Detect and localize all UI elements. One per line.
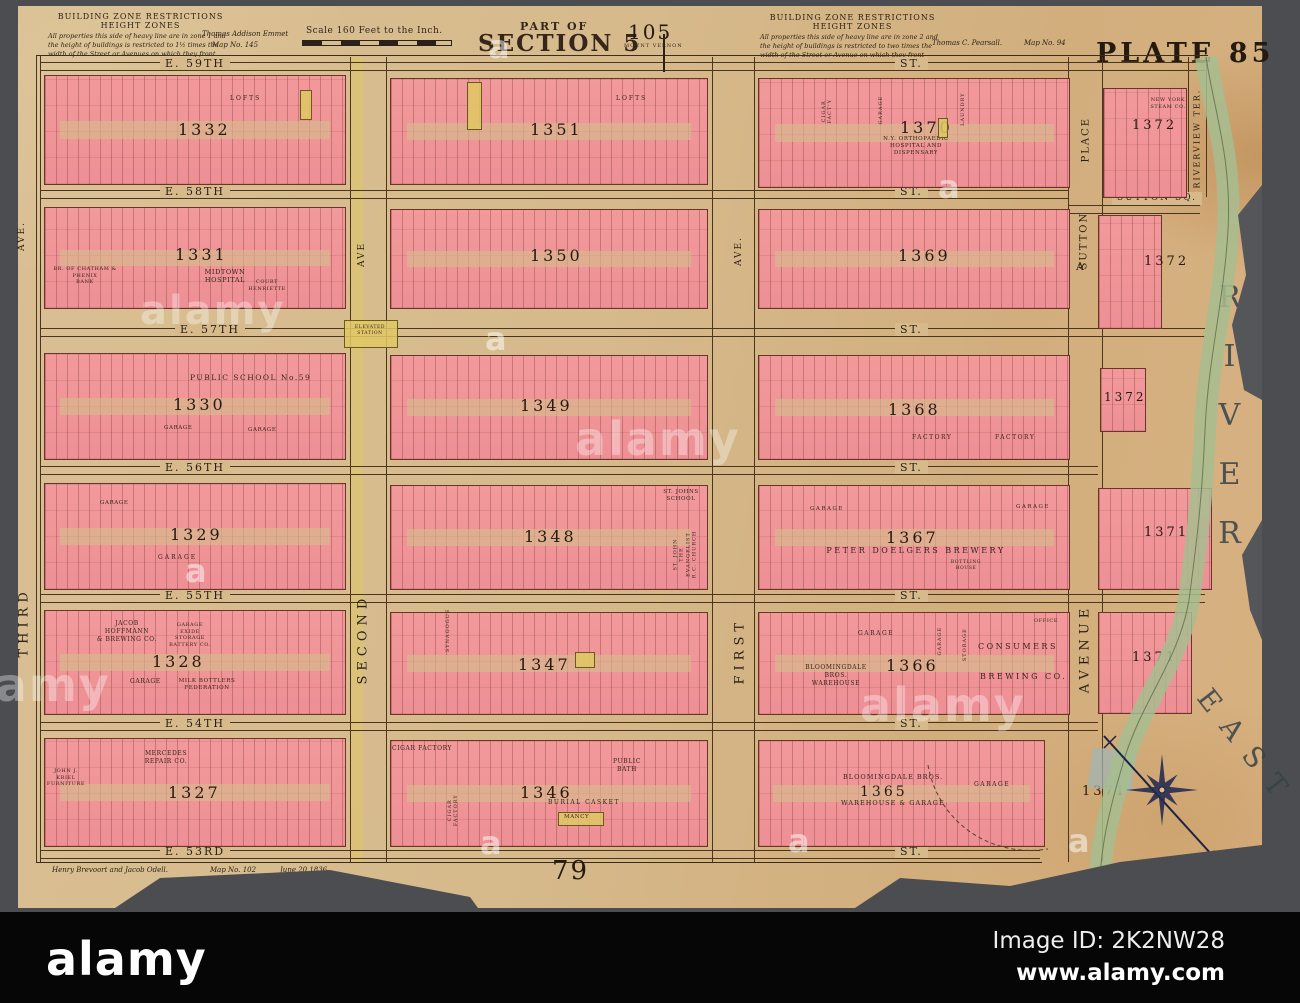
third-ave-sub: AVE. <box>17 219 27 251</box>
block-1346-public-bath: PUBLIC BATH <box>610 758 644 774</box>
block-1366-storage: STORAGE <box>962 629 968 661</box>
block-1328-garage: GARAGE <box>130 678 161 686</box>
block-1372-south <box>1098 215 1162 329</box>
sutton-name: SUTTON <box>1079 210 1090 270</box>
street-name-59: E. 59TH <box>160 57 230 70</box>
street-name-57: E. 57TH <box>175 323 245 336</box>
first-ave-line-w <box>712 57 713 862</box>
map-footer-map-no: Map No. 102 <box>210 866 256 874</box>
block-1370-garage: GARAGE <box>878 95 884 125</box>
block-1365-bloomingdale-1: BLOOMINGDALE BROS. <box>843 773 943 781</box>
block-1328-number: 1328 <box>152 652 205 671</box>
block-1330-number: 1330 <box>173 395 226 414</box>
ref-number: 105 <box>628 20 672 44</box>
block-1366-office: OFFICE <box>1034 618 1058 625</box>
block-1346-cigar-factory-2: CIGAR FACTORY <box>447 792 460 828</box>
block-1327-mercedes: MERCEDES REPAIR CO. <box>140 750 192 766</box>
block-1331-bank: BR. OF CHATHAM & PHENIX BANK <box>48 266 122 286</box>
block-1372-steam-co: NEW YORK STEAM CO. <box>1146 97 1190 110</box>
block-1328-milk-bottlers: MILK BOTTLERS FEDERATION <box>178 678 236 692</box>
block-1349-number: 1349 <box>520 396 573 415</box>
block-1370-cigar-factory: CIGAR FACT'Y <box>821 90 834 132</box>
block-1327-number: 1327 <box>168 783 221 802</box>
block-1366-bloomingdale: BLOOMINGDALE BROS. WAREHOUSE <box>805 664 867 687</box>
block-1331-number: 1331 <box>175 245 228 264</box>
block-1366-garage-2: GARAGE <box>937 626 943 656</box>
owner-right: Thomas C. Pearsall. <box>932 39 1002 47</box>
street-name-54: E. 54TH <box>160 717 230 730</box>
map-no-right: Map No. 94 <box>1024 39 1066 47</box>
block-1370-hospital: N.Y. ORTHOPAEDIC HOSPITAL AND DISPENSARY <box>880 136 952 157</box>
zone-note-left-title: BUILDING ZONE RESTRICTIONS <box>48 12 233 21</box>
block-1365-number: 1365 <box>860 784 908 800</box>
block-1371-north-number: 1371 <box>1144 525 1189 540</box>
block-1351-lofts: LOFTS <box>616 95 647 103</box>
scale-bar <box>302 40 452 46</box>
street-suffix-59: ST. <box>895 57 928 70</box>
block-1330-public-school: PUBLIC SCHOOL No.59 <box>190 373 311 383</box>
yellow-building-4 <box>575 652 595 668</box>
owner-left: Thomas Addison Emmet <box>202 30 288 38</box>
block-1367-bottling-house: BOTTLING HOUSE <box>948 560 984 572</box>
street-suffix-56: ST. <box>895 461 928 474</box>
neatline-bottom <box>36 862 1042 863</box>
block-1329-garage-1: GARAGE <box>100 500 129 507</box>
mount-vernon-label: MOUNT VERNON <box>624 43 683 50</box>
block-1366-garage-1: GARAGE <box>858 630 894 638</box>
first-ave-line-e <box>754 57 755 862</box>
street-suffix-54: ST. <box>895 717 928 730</box>
zone-note-right-title: BUILDING ZONE RESTRICTIONS <box>760 13 945 22</box>
block-1346-cigar-factory-1: CIGAR FACTORY <box>392 745 452 753</box>
east-river-label-river: RIVER <box>1212 280 1247 575</box>
block-1365-bloomingdale-2: WAREHOUSE & GARAGE <box>841 799 945 807</box>
alamy-logo: alamy <box>46 932 207 986</box>
first-ave-sub: AVE. <box>734 236 744 266</box>
block-1330-garage-1: GARAGE <box>164 425 193 432</box>
block-1332-number: 1332 <box>178 120 231 139</box>
block-1330-garage-2: GARAGE <box>248 427 277 434</box>
map-no-left: Map No. 145 <box>212 41 258 49</box>
zone-note-right-subtitle: HEIGHT ZONES <box>760 22 945 31</box>
block-1368-factory-2: FACTORY <box>995 434 1035 442</box>
avenue-a-name: AVENUE <box>1078 599 1093 699</box>
block-1332-lofts: LOFTS <box>230 95 261 103</box>
block-1366-number: 1366 <box>886 656 939 675</box>
block-1331-court-henriette: COURT HENRIETTE <box>248 279 286 292</box>
block-1369-number: 1369 <box>898 246 951 265</box>
block-1368-number: 1368 <box>888 400 941 419</box>
image-id-text: Image ID: 2K2NW28 <box>993 928 1225 954</box>
block-1329-garage-2: GARAGE <box>158 554 197 562</box>
yellow-building-2 <box>300 90 312 120</box>
adjacent-plate-number: 79 <box>552 856 589 886</box>
street-suffix-57: ST. <box>895 323 928 336</box>
street-suffix-55: ST. <box>895 589 928 602</box>
block-1372-square-number: 1372 <box>1104 390 1147 404</box>
block-1370-laundry: LAUNDRY <box>960 92 966 126</box>
second-ave-name: SECOND <box>356 597 371 685</box>
block-1366-brewing-co: BREWING CO. <box>980 672 1067 682</box>
third-ave-line-outer <box>36 55 37 862</box>
block-1348-number: 1348 <box>524 527 577 546</box>
block-1367-garage-2: GARAGE <box>1016 504 1050 511</box>
block-1346-burial-casket: BURIAL CASKET <box>548 799 620 807</box>
block-1348-st-johns-school: ST. JOHNS SCHOOL <box>658 489 704 503</box>
block-1350-number: 1350 <box>530 246 583 265</box>
block-1372-north-number: 1372 <box>1132 118 1177 133</box>
block-1368-factory-1: FACTORY <box>912 434 952 442</box>
riverview-line-w <box>1188 57 1189 197</box>
elevated-station-label: ELEVATED STATION <box>346 325 394 337</box>
zone-note-left-subtitle: HEIGHT ZONES <box>48 21 233 30</box>
third-ave-name: THIRD <box>17 598 32 658</box>
block-1347-synagogue: SYNAGOGUE <box>445 612 451 652</box>
street-name-56: E. 56TH <box>160 461 230 474</box>
block-1331-midtown-hospital: MIDTOWN HOSPITAL <box>203 268 247 285</box>
map-footer-date: June 20 1836 <box>280 866 327 874</box>
block-1328-exide-garage: GARAGE EXIDE STORAGE BATTERY CO. <box>164 622 216 648</box>
block-1367-number: 1367 <box>886 528 939 547</box>
place-name: PLACE <box>1081 113 1092 163</box>
second-ave-elevated-line <box>351 57 363 862</box>
block-1348-st-john-church: ST. JOHN THE EVANGELIST R.C. CHURCH <box>673 526 698 584</box>
block-1371-mid-number: 1371 <box>1132 650 1177 665</box>
alamy-footer-bar: alamy Image ID: 2K2NW28 www.alamy.com <box>0 912 1300 1003</box>
block-1351-number: 1351 <box>530 120 583 139</box>
scale-label: Scale 160 Feet to the Inch. <box>306 26 443 38</box>
map-footer-surveyors: Henry Brevoort and Jacob Odell. <box>52 866 168 874</box>
second-ave-line-w <box>350 57 351 862</box>
second-ave-sub: AVE <box>357 239 367 267</box>
second-ave-line-e <box>386 57 387 862</box>
yellow-building-1 <box>467 82 482 130</box>
block-1371-south-number: 1371 <box>1082 784 1127 799</box>
neatline-top <box>36 55 1208 56</box>
first-ave-name: FIRST <box>733 621 748 685</box>
riverview-line-e <box>1206 57 1207 197</box>
zone-note-right: BUILDING ZONE RESTRICTIONS HEIGHT ZONES … <box>760 13 945 59</box>
block-1367-brewery: PETER DOELGERS BREWERY <box>826 546 1006 556</box>
alamy-url-link[interactable]: www.alamy.com <box>1016 960 1225 986</box>
block-1346-mancy: MANCY <box>564 814 589 821</box>
street-name-55: E. 55TH <box>160 589 230 602</box>
block-1365-garage: GARAGE <box>974 781 1010 789</box>
street-name-58: E. 58TH <box>160 185 230 198</box>
block-1327-kriel: JOHN J. KRIEL FURNITURE <box>44 768 88 788</box>
yellow-building-3 <box>938 118 948 138</box>
block-1367-garage-1: GARAGE <box>810 506 844 513</box>
block-1372-south-number: 1372 <box>1144 254 1189 269</box>
block-1347-number: 1347 <box>518 655 571 674</box>
block-1329-number: 1329 <box>170 525 223 544</box>
stock-photo-page: BUILDING ZONE RESTRICTIONS HEIGHT ZONES … <box>0 0 1300 1003</box>
block-1328-hoffmann-brewing: JACOB HOFFMANN & BREWING CO. <box>92 620 162 643</box>
riverview-ter-name: RIVERVIEW TER. <box>1193 89 1202 189</box>
block-1366-consumers: CONSUMERS <box>978 642 1058 652</box>
third-ave-line <box>40 55 41 862</box>
